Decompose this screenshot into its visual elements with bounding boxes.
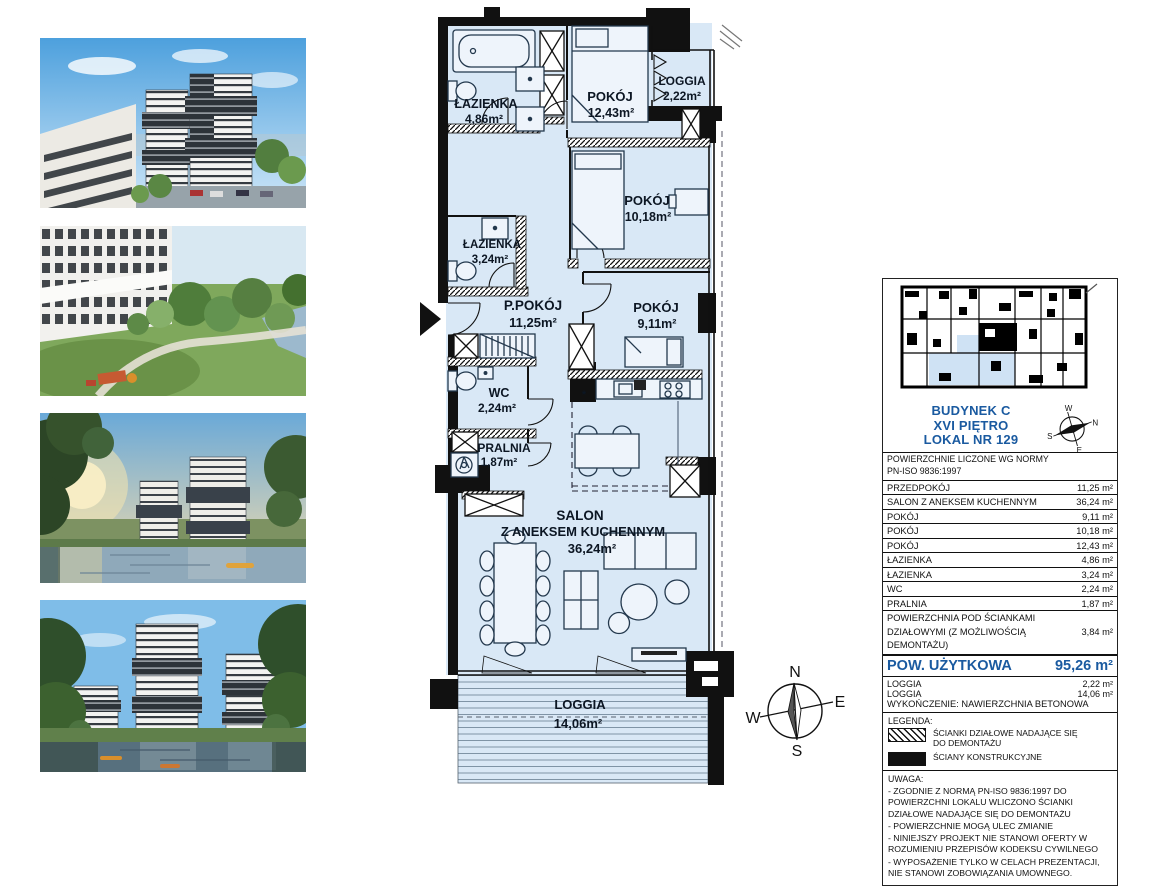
unit-title: BUDYNEK C XVI PIĘTRO LOKAL NR 129 — [887, 404, 1055, 448]
areas-table-header: POWIERZCHNIE LICZONE WG NORMY PN-ISO 983… — [883, 453, 1117, 481]
total-label: POW. UŻYTKOWA — [887, 658, 1049, 674]
tv-stand — [632, 648, 686, 661]
loggia-area: 2,22 m² — [1076, 679, 1113, 689]
tower-left — [142, 90, 192, 190]
bank — [40, 728, 306, 744]
room-label: LOGGIA — [554, 697, 606, 712]
coffee-table — [621, 584, 657, 620]
photo-1-scene — [40, 38, 306, 208]
legend-item: ŚCIANKI DZIAŁOWE NADAJĄCE SIĘ DO DEMONTA… — [888, 728, 1112, 749]
room-label: ŁAZIENKA — [463, 239, 521, 251]
total-area-row: POW. UŻYTKOWA 95,26 m² — [883, 655, 1117, 677]
finish-note: WYKOŃCZENIE: NAWIERZCHNIA BETONOWA — [883, 699, 1117, 713]
side-table — [609, 613, 630, 634]
room-area: 4,86 m² — [1075, 555, 1113, 565]
compass-n: N — [789, 664, 801, 681]
loggia-area: 14,06 m² — [1071, 689, 1113, 699]
building-name: BUDYNEK C — [887, 404, 1055, 419]
compass-s: S — [792, 743, 803, 760]
room-area: 2,24 m² — [1075, 584, 1113, 594]
room-label: ŁAZIENKA — [454, 97, 517, 111]
legend-title: LEGENDA: — [888, 716, 1112, 726]
table-row: WC 2,24 m² — [883, 582, 1117, 597]
tower-main — [185, 74, 257, 196]
kitchen-counter — [596, 379, 702, 399]
room-area: 12,43 m² — [1070, 541, 1113, 551]
room-label: PRALNIA — [477, 441, 531, 455]
legend-item: ŚCIANY KONSTRUKCYJNE — [888, 752, 1112, 766]
apartment-floorplan: ŁAZIENKA 4,86m² POKÓJ 12,43m² LOGGIA 2,2… — [420, 5, 880, 793]
photo-3-scene — [40, 413, 306, 583]
room-area: 10,18 m² — [1070, 526, 1113, 536]
room-label: PRALNIA — [887, 599, 1075, 609]
floor-name: XVI PIĘTRO — [887, 419, 1055, 434]
room-area: 1,87 m² — [1075, 599, 1113, 609]
bathtub — [453, 30, 535, 72]
legend-label: ŚCIANY KONSTRUKCYJNE — [933, 752, 1042, 763]
note-line: - NINIEJSZY PROJEKT NIE STANOWI OFERTY W… — [888, 833, 1112, 856]
room-area: 3,24 m² — [1075, 570, 1113, 580]
areas-table: POWIERZCHNIE LICZONE WG NORMY PN-ISO 983… — [883, 452, 1117, 713]
photo-4-scene — [40, 600, 306, 772]
room-area: 4,86m² — [465, 112, 503, 126]
table-row: POKÓJ 12,43 m² — [883, 539, 1117, 554]
room-label: POWIERZCHNIA POD ŚCIANKAMI DZIAŁOWYMI (Z… — [887, 612, 1037, 652]
neighbor-hatch — [720, 25, 742, 49]
compass-w: W — [745, 710, 761, 727]
room-label: PRZEDPOKÓJ — [887, 483, 1071, 493]
hatch-swatch-icon — [888, 728, 926, 742]
kayak — [226, 563, 254, 568]
note-line: - ZGODNIE Z NORMĄ PN-ISO 9836:1997 DO PO… — [888, 786, 1112, 820]
unit-number: LOKAL NR 129 — [887, 433, 1055, 448]
building-rendering-photo-1 — [40, 38, 306, 208]
note-line: - POWIERZCHNIE MOGĄ ULEC ZMIANIE — [888, 821, 1112, 832]
water — [40, 547, 306, 583]
room-label: WC — [887, 584, 1075, 594]
room-label: POKÓJ — [887, 541, 1070, 551]
kayak — [160, 764, 180, 768]
room-area: 14,06m² — [554, 716, 603, 731]
room-area: 2,22m² — [663, 89, 701, 103]
room-label: WC — [489, 386, 510, 400]
table-row: POWIERZCHNIA POD ŚCIANKAMI DZIAŁOWYMI (Z… — [883, 611, 1117, 654]
room-area: 11,25 m² — [1071, 483, 1113, 493]
room-label: POKÓJ — [587, 89, 633, 104]
mini-compass-n: N — [1092, 418, 1098, 427]
table-row: PRZEDPOKÓJ 11,25 m² — [883, 481, 1117, 496]
mini-compass-e: E — [1077, 446, 1082, 454]
washing-machine — [451, 453, 478, 477]
room-area: 1,87m² — [481, 457, 518, 469]
floor-overview-miniplan — [883, 279, 1117, 402]
table-row: ŁAZIENKA 3,24 m² — [883, 568, 1117, 583]
loggia-label: LOGGIA — [887, 689, 1071, 699]
room-area: 2,24m² — [478, 401, 516, 415]
room-area: 9,11m² — [638, 317, 677, 331]
toilet — [448, 371, 476, 391]
notes-title: UWAGA: — [888, 774, 1112, 784]
norm-line-2: PN-ISO 9836:1997 — [887, 466, 1113, 478]
solid-wall-swatch-icon — [888, 752, 926, 766]
room-label-line2: Z ANEKSEM KUCHENNYM — [501, 524, 665, 539]
building-rendering-photo-2 — [40, 226, 306, 396]
note-line: - WYPOSAŻENIE TYLKO W CELACH PREZENTACJI… — [888, 857, 1112, 880]
table-row: ŁAZIENKA 4,86 m² — [883, 553, 1117, 568]
total-value: 95,26 m² — [1049, 658, 1113, 674]
bed — [625, 337, 683, 367]
compass-e: E — [835, 694, 846, 711]
notes-section: UWAGA: - ZGODNIE Z NORMĄ PN-ISO 9836:199… — [883, 771, 1117, 886]
compass-rose: N E S W — [745, 664, 845, 760]
room-label: POKÓJ — [887, 512, 1076, 522]
room-label: SALON Z ANEKSEM KUCHENNYM — [887, 497, 1070, 507]
bed — [572, 151, 624, 249]
unit-title-row: BUDYNEK C XVI PIĘTRO LOKAL NR 129 W N E … — [883, 402, 1117, 452]
loggia-row: LOGGIA 2,22 m² — [883, 677, 1117, 689]
table-row: PRALNIA 1,87 m² — [883, 597, 1117, 612]
room-area: 10,18m² — [625, 210, 672, 224]
pond — [40, 742, 306, 772]
photo-2-scene — [40, 226, 306, 396]
loggia-row: LOGGIA 14,06 m² — [883, 689, 1117, 699]
room-label: POKÓJ — [624, 193, 670, 208]
room-area: 3,24m² — [472, 254, 509, 266]
kitchen-marker: * — [582, 389, 587, 401]
mini-compass-w: W — [1065, 404, 1073, 413]
desk — [675, 189, 708, 215]
room-label: LOGGIA — [658, 74, 706, 88]
room-area: 3,84 m² — [1075, 627, 1113, 637]
miniplan-drawing — [889, 283, 1109, 395]
armchair — [564, 571, 598, 629]
room-area: 11,25m² — [509, 315, 557, 330]
room-label: ŁAZIENKA — [887, 570, 1075, 580]
coat-rack — [480, 334, 535, 358]
side-table — [665, 580, 689, 604]
room-area: 36,24m² — [568, 541, 617, 556]
loggia-label: LOGGIA — [887, 679, 1076, 689]
mini-compass-s: S — [1047, 432, 1052, 441]
building-rendering-photo-3 — [40, 413, 306, 583]
tree — [148, 174, 172, 198]
room-label: SALON — [556, 508, 603, 523]
kitchen-table — [575, 426, 639, 476]
room-label: POKÓJ — [633, 300, 679, 315]
room-label: P.POKÓJ — [504, 298, 562, 313]
room-area: 9,11 m² — [1076, 512, 1113, 522]
room-label: POKÓJ — [887, 526, 1070, 536]
tower-tall-1 — [132, 624, 202, 740]
mini-compass: W N E S — [1041, 404, 1105, 454]
kayak — [100, 756, 122, 760]
entrance-arrow — [420, 302, 441, 336]
legend: LEGENDA: ŚCIANKI DZIAŁOWE NADAJĄCE SIĘ D… — [883, 713, 1117, 771]
table-row: SALON Z ANEKSEM KUCHENNYM 36,24 m² — [883, 495, 1117, 510]
table-row: POKÓJ 9,11 m² — [883, 510, 1117, 525]
room-area: 36,24 m² — [1070, 497, 1113, 507]
room-area: 12,43m² — [588, 106, 635, 120]
floorplan-drawing: ŁAZIENKA 4,86m² POKÓJ 12,43m² LOGGIA 2,2… — [420, 5, 880, 793]
building-rendering-photo-4 — [40, 600, 306, 772]
room-label: ŁAZIENKA — [887, 555, 1075, 565]
legend-label: ŚCIANKI DZIAŁOWE NADAJĄCE SIĘ DO DEMONTA… — [933, 728, 1083, 749]
table-row: POKÓJ 10,18 m² — [883, 524, 1117, 539]
norm-line-1: POWIERZCHNIE LICZONE WG NORMY — [887, 454, 1113, 466]
